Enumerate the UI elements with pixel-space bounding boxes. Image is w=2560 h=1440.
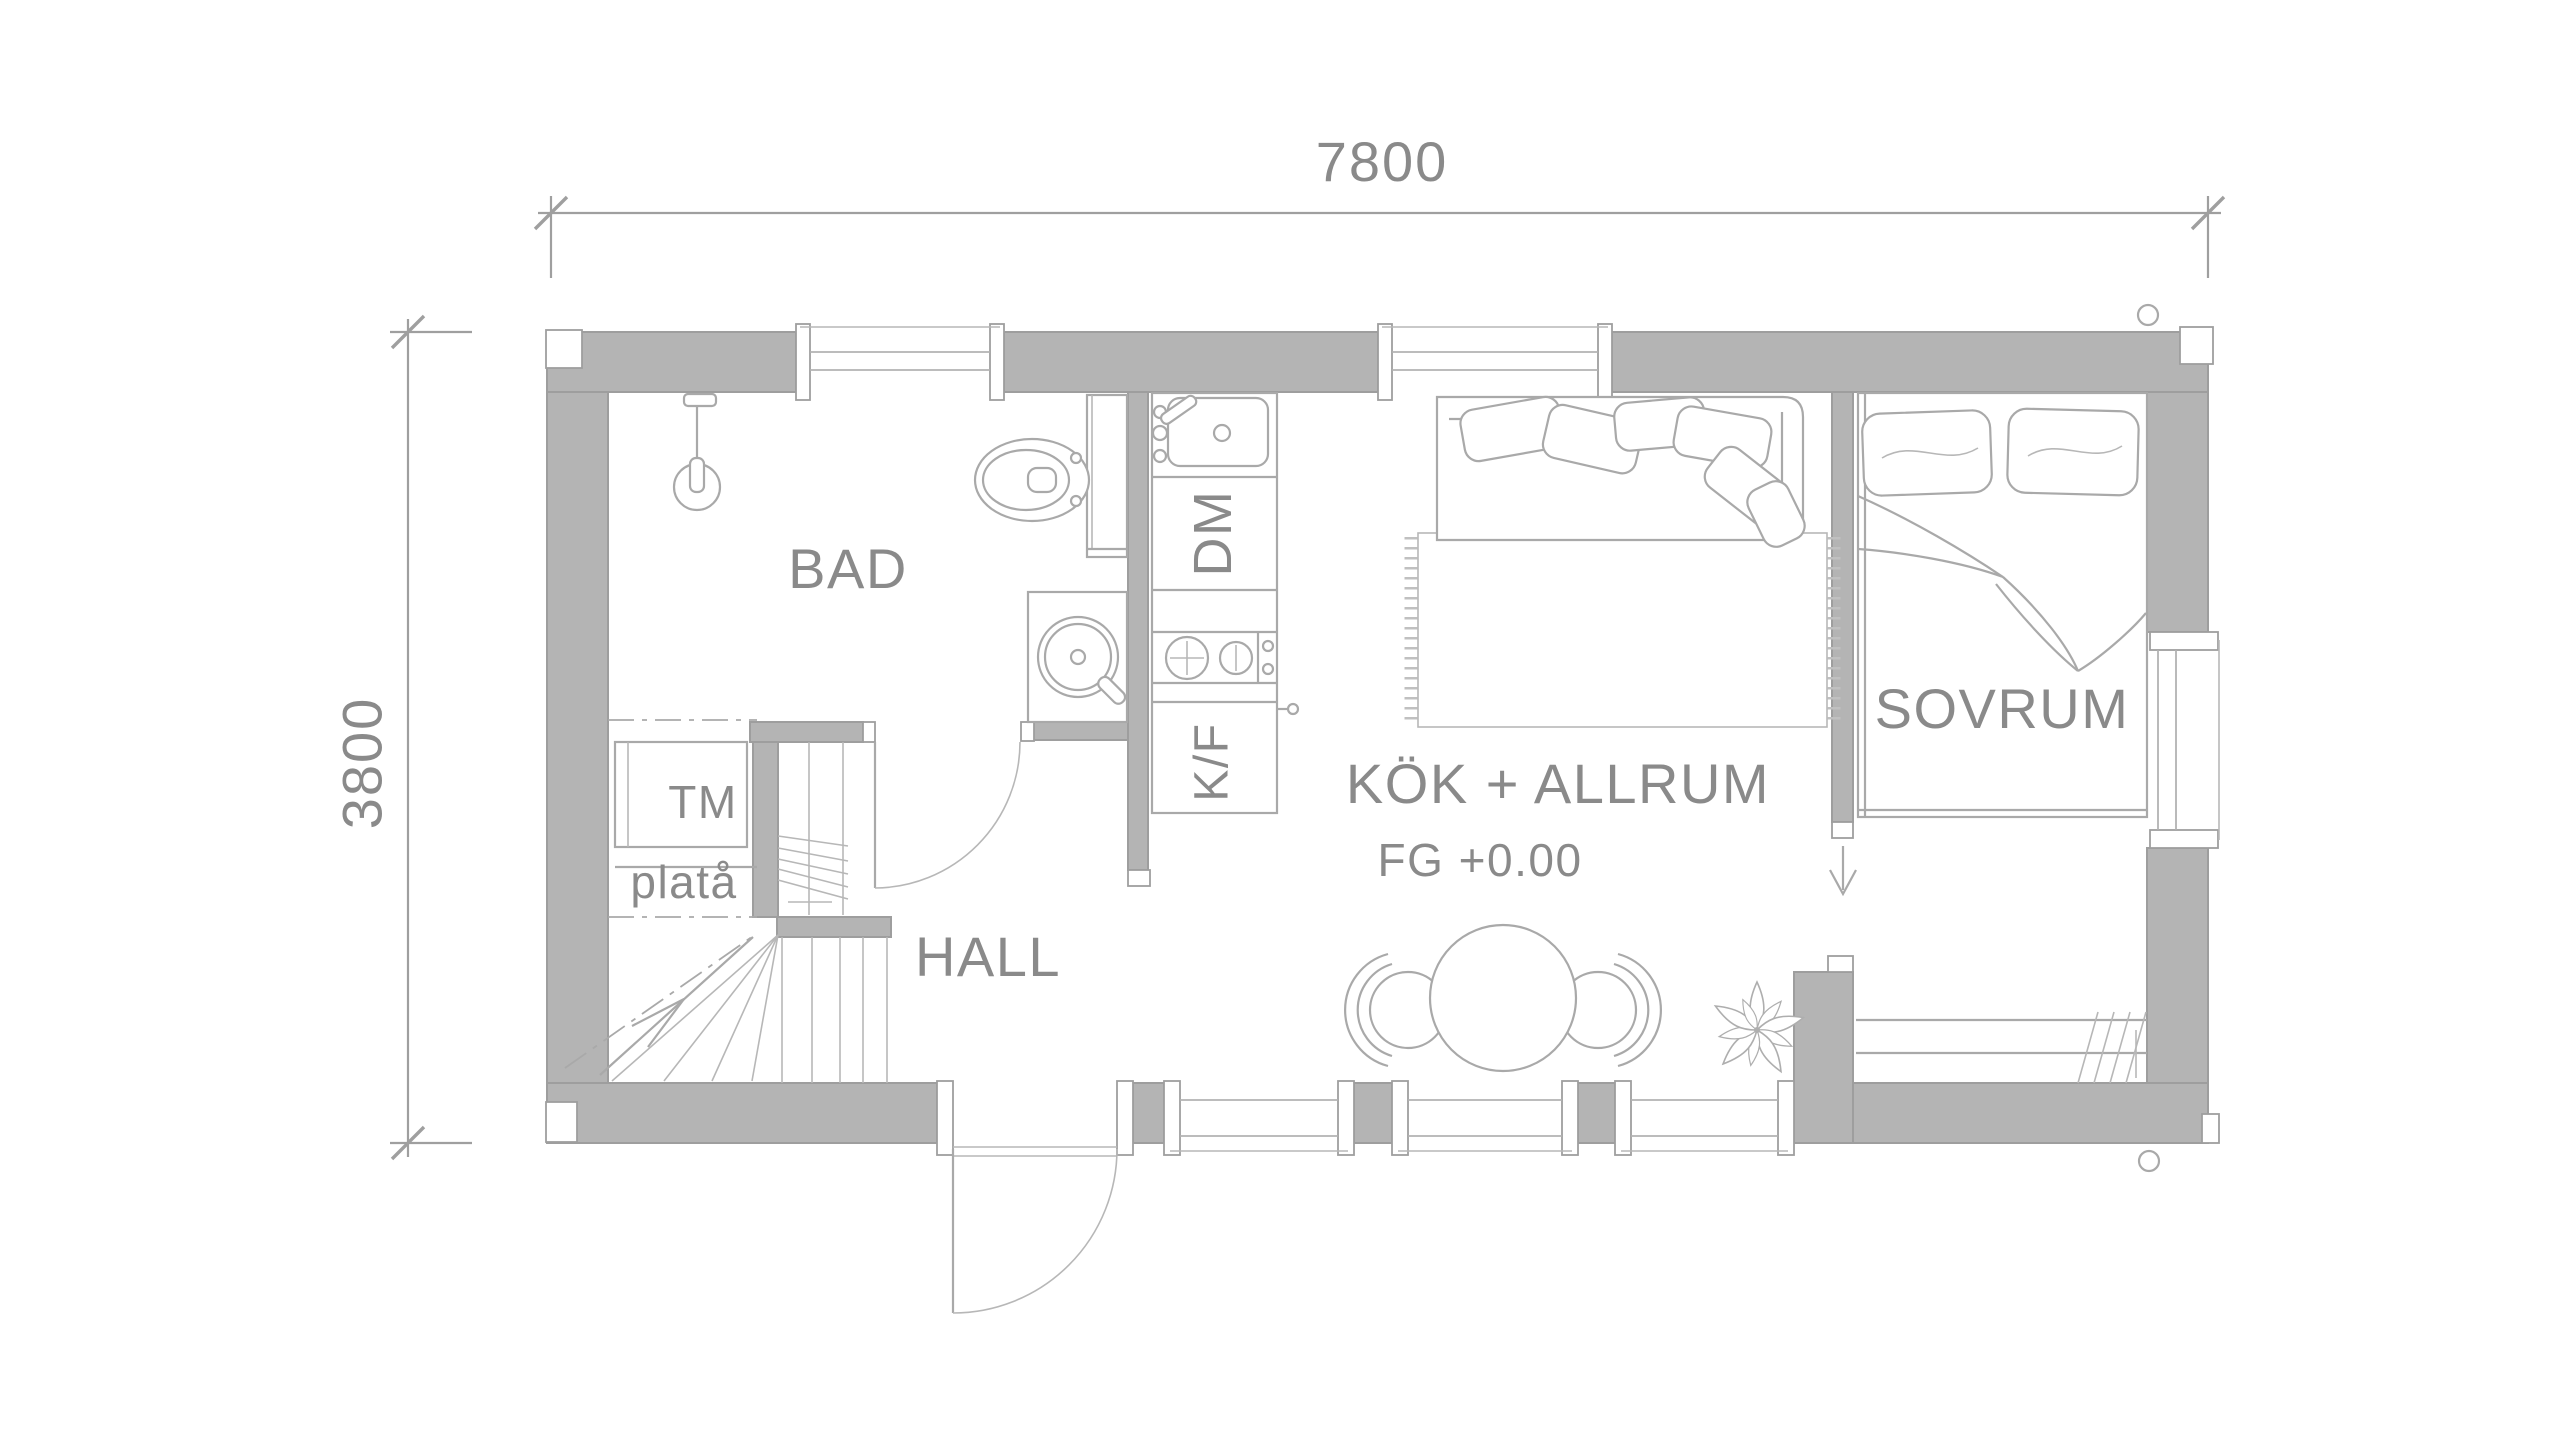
toilet — [975, 395, 1127, 557]
rug — [1411, 533, 1834, 727]
dining-table — [1430, 925, 1576, 1071]
dimension-left: 3800 — [331, 316, 473, 1159]
doors — [875, 742, 1856, 1313]
label-platform: platå — [630, 856, 737, 908]
window-bottom-1 — [1170, 1100, 1348, 1151]
label-fridge-freezer: K/F — [1186, 722, 1239, 801]
label-bedroom: SOVRUM — [1875, 677, 2130, 740]
bedroom-bench — [1856, 1012, 2147, 1083]
sofa — [1437, 395, 1809, 552]
label-bathroom: BAD — [788, 537, 908, 600]
stair-lower-flight — [782, 937, 887, 1083]
bathroom-door — [875, 742, 1020, 888]
living-room — [1345, 395, 1834, 1075]
label-hall: HALL — [915, 925, 1061, 988]
label-dishwasher: DM — [1183, 490, 1243, 577]
window-bottom-2 — [1398, 1100, 1572, 1151]
window-bottom-3 — [1621, 1100, 1788, 1151]
front-door — [953, 1147, 1117, 1313]
label-floor-level: FG +0.00 — [1377, 834, 1582, 886]
floor-plan-page: 7800 3800 — [0, 0, 2560, 1440]
fridge-handle — [1277, 704, 1298, 714]
dimension-width-label: 7800 — [1316, 130, 1449, 193]
bed — [1858, 393, 2147, 817]
downpipe-circle-bottom — [2139, 1151, 2159, 1171]
stair-winders — [612, 935, 778, 1081]
stair-upper-flight — [778, 742, 848, 915]
window-bedroom-right — [2158, 640, 2219, 840]
kitchen-sink — [1153, 394, 1268, 466]
window-bathroom-top — [800, 327, 1000, 370]
downpipe-circle-top — [2138, 305, 2158, 325]
label-washing-machine: TM — [668, 776, 737, 828]
shower — [674, 394, 720, 510]
label-kitchen-living: KÖK + ALLRUM — [1346, 752, 1770, 815]
dimension-height-label: 3800 — [331, 697, 394, 830]
dimension-top: 7800 — [535, 130, 2224, 278]
washbasin — [1028, 592, 1128, 722]
bedroom-passage-arrow — [1830, 846, 1856, 894]
window-kitchen-top — [1382, 327, 1608, 370]
stair-direction-arrow — [600, 937, 753, 1075]
plant — [1712, 982, 1805, 1075]
